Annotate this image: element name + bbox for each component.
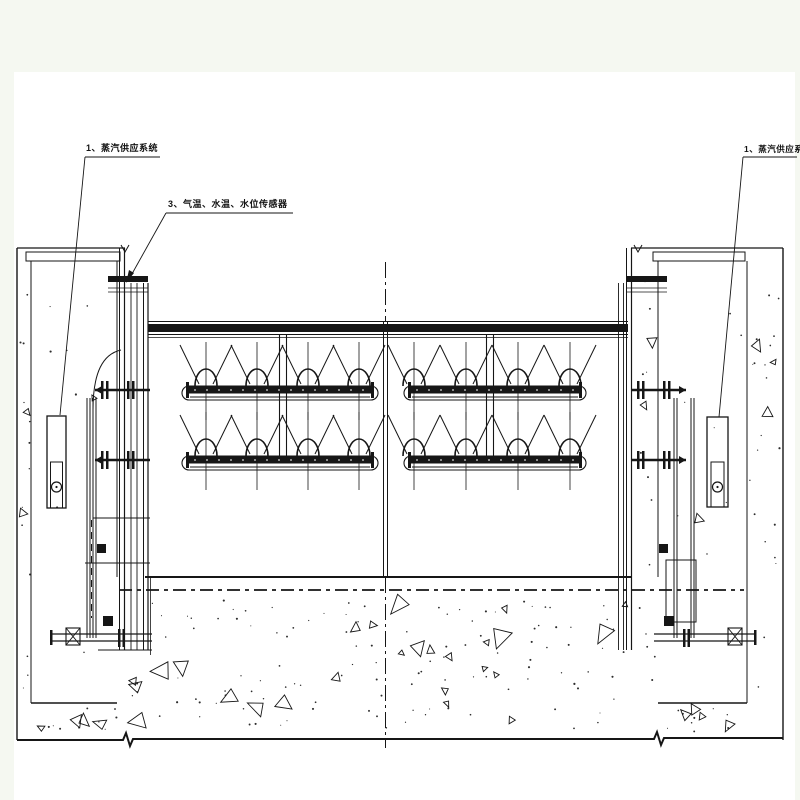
aggregate-dot bbox=[243, 708, 245, 710]
aggregate-dot bbox=[654, 656, 656, 658]
aggregate-dot bbox=[577, 687, 579, 689]
aggregate-dot bbox=[429, 660, 431, 662]
aggregate-dot bbox=[195, 698, 197, 700]
aggregate-dot bbox=[774, 557, 776, 559]
aggregate-dot bbox=[263, 698, 264, 699]
aggregate-dot bbox=[279, 665, 281, 667]
aggregate-dot bbox=[642, 373, 644, 375]
aggregate-dot bbox=[754, 362, 756, 364]
aggregate-dot bbox=[568, 644, 570, 646]
aggregate-dot bbox=[769, 345, 771, 347]
label-steam-supply-right: 1、蒸汽供应系统 bbox=[744, 144, 800, 155]
label-sensors: 3、气温、水温、水位传感器 bbox=[168, 199, 288, 210]
aggregate-dot bbox=[224, 690, 226, 692]
valve-handle bbox=[659, 544, 668, 553]
aggregate-dot bbox=[260, 680, 261, 681]
aggregate-dot bbox=[528, 666, 530, 668]
aggregate-dot bbox=[561, 672, 562, 673]
flange bbox=[642, 381, 645, 399]
aggregate-dot bbox=[445, 646, 447, 648]
aggregate-dot bbox=[646, 646, 648, 648]
aggregate-dot bbox=[764, 364, 765, 365]
aggregate-dot bbox=[480, 635, 482, 637]
aggregate-dot bbox=[508, 688, 510, 690]
aggregate-dot bbox=[756, 338, 758, 340]
aggregate-dot bbox=[280, 725, 281, 726]
aggregate-dot bbox=[286, 720, 287, 721]
aggregate-dot bbox=[639, 607, 641, 609]
aggregate-dot bbox=[105, 729, 106, 730]
aggregate-dot bbox=[59, 728, 61, 730]
aggregate-dot bbox=[115, 716, 117, 718]
aggregate-dot bbox=[294, 683, 295, 684]
aggregate-dot bbox=[464, 644, 466, 646]
aggregate-dot bbox=[255, 723, 257, 725]
aggregate-dot bbox=[438, 607, 440, 609]
aggregate-dot bbox=[199, 701, 201, 703]
aggregate-dot bbox=[418, 672, 420, 674]
flange bbox=[106, 381, 109, 399]
aggregate-dot bbox=[757, 449, 758, 450]
aggregate-dot bbox=[651, 499, 653, 501]
aggregate-dot bbox=[693, 730, 695, 732]
flange bbox=[132, 381, 135, 399]
aggregate-dot bbox=[486, 676, 488, 678]
aggregate-dot bbox=[459, 609, 460, 610]
aggregate-dot bbox=[23, 402, 24, 403]
aggregate-dot bbox=[623, 651, 625, 653]
aggregate-dot bbox=[485, 610, 487, 612]
aggregate-dot bbox=[587, 671, 589, 673]
aggregate-dot bbox=[75, 393, 77, 395]
aggregate-dot bbox=[249, 724, 251, 726]
aggregate-dot bbox=[527, 678, 528, 679]
aggregate-dot bbox=[364, 605, 366, 607]
aggregate-dot bbox=[323, 613, 324, 614]
aggregate-dot bbox=[472, 620, 474, 622]
flange bbox=[637, 451, 640, 469]
valve-handle bbox=[103, 616, 113, 626]
aggregate-dot bbox=[308, 620, 309, 621]
aggregate-dot bbox=[677, 710, 679, 712]
aggregate-dot bbox=[216, 703, 217, 704]
aggregate-dot bbox=[357, 621, 358, 622]
aggregate-dot bbox=[161, 615, 162, 616]
aggregate-dot bbox=[236, 618, 238, 620]
aggregate-dot bbox=[470, 714, 472, 716]
aggregate-dot bbox=[159, 715, 161, 717]
aggregate-dot bbox=[276, 632, 277, 633]
aggregate-dot bbox=[21, 524, 23, 526]
flange bbox=[127, 381, 130, 399]
label-steam-supply-left: 1、蒸汽供应系统 bbox=[86, 143, 158, 154]
aggregate-dot bbox=[766, 377, 768, 379]
slot-top-bracket-right bbox=[627, 276, 667, 282]
aggregate-dot bbox=[649, 308, 651, 310]
aggregate-dot bbox=[727, 714, 728, 715]
aggregate-dot bbox=[443, 656, 444, 657]
aggregate-dot bbox=[23, 342, 25, 344]
aggregate-dot bbox=[649, 564, 651, 566]
aggregate-dot bbox=[50, 351, 52, 353]
aggregate-dot bbox=[193, 628, 195, 630]
aggregate-dot bbox=[761, 435, 762, 436]
aggregate-dot bbox=[86, 707, 88, 709]
aggregate-dot bbox=[549, 607, 551, 609]
aggregate-dot bbox=[376, 662, 377, 663]
aggregate-dot bbox=[412, 710, 413, 711]
aggregate-dot bbox=[245, 610, 247, 612]
aggregate-dot bbox=[233, 609, 234, 610]
aggregate-dot bbox=[341, 675, 343, 677]
aggregate-dot bbox=[606, 619, 607, 620]
drawing-canvas: 1、蒸汽供应系统 3、气温、水温、水位传感器 1、蒸汽供应系统 bbox=[0, 0, 800, 800]
aggregate-dot bbox=[411, 683, 413, 685]
aggregate-dot bbox=[19, 341, 21, 343]
aggregate-dot bbox=[187, 616, 188, 617]
aggregate-dot bbox=[272, 607, 273, 608]
aggregate-dot bbox=[713, 708, 714, 709]
flange bbox=[642, 451, 645, 469]
aggregate-dot bbox=[191, 617, 192, 618]
engineering-drawing bbox=[0, 0, 800, 800]
aggregate-dot bbox=[29, 468, 30, 469]
flange bbox=[132, 451, 135, 469]
aggregate-dot bbox=[165, 636, 167, 638]
aggregate-dot bbox=[531, 641, 533, 643]
aggregate-dot bbox=[554, 708, 556, 710]
aggregate-dot bbox=[199, 716, 200, 717]
aggregate-dot bbox=[752, 364, 753, 365]
aggregate-dot bbox=[348, 602, 350, 604]
aggregate-dot bbox=[23, 687, 24, 688]
aggregate-dot bbox=[352, 664, 353, 665]
aggregate-dot bbox=[285, 686, 287, 688]
aggregate-dot bbox=[315, 701, 317, 703]
aggregate-dot bbox=[444, 679, 446, 681]
aggregate-dot bbox=[497, 652, 499, 654]
aggregate-dot bbox=[312, 708, 314, 710]
valve-handle bbox=[97, 544, 106, 553]
aggregate-dot bbox=[778, 298, 780, 300]
aggregate-dot bbox=[152, 603, 153, 604]
aggregate-dot bbox=[602, 648, 603, 649]
aggregate-dot bbox=[429, 708, 430, 709]
aggregate-dot bbox=[53, 725, 54, 726]
aggregate-dot bbox=[473, 676, 474, 677]
aggregate-dot bbox=[534, 628, 536, 630]
aggregate-dot bbox=[27, 655, 29, 657]
aggregate-dot bbox=[346, 614, 347, 615]
aggregate-dot bbox=[177, 677, 178, 678]
flange bbox=[668, 451, 671, 469]
aggregate-dot bbox=[684, 402, 685, 403]
aggregate-dot bbox=[86, 305, 88, 307]
aggregate-dot bbox=[651, 679, 653, 681]
aggregate-dot bbox=[768, 294, 770, 296]
aggregate-dot bbox=[425, 714, 426, 715]
aggregate-dot bbox=[545, 606, 547, 608]
aggregate-dot bbox=[286, 636, 288, 638]
aggregate-dot bbox=[217, 618, 219, 620]
aggregate-dot bbox=[381, 695, 383, 697]
aggregate-dot bbox=[706, 553, 707, 554]
aggregate-dot bbox=[371, 645, 373, 647]
aggregate-dot bbox=[667, 728, 668, 729]
aggregate-dot bbox=[48, 726, 50, 728]
aggregate-dot bbox=[345, 631, 347, 633]
aggregate-dot bbox=[376, 678, 378, 680]
aggregate-dot bbox=[356, 645, 357, 646]
aggregate-dot bbox=[613, 698, 614, 699]
aggregate-dot bbox=[28, 442, 30, 444]
aggregate-dot bbox=[691, 722, 693, 724]
aggregate-dot bbox=[749, 480, 750, 481]
aggregate-dot bbox=[251, 691, 253, 693]
aggregate-dot bbox=[50, 306, 51, 307]
aggregate-dot bbox=[495, 611, 496, 612]
aggregate-dot bbox=[573, 683, 575, 685]
aggregate-dot bbox=[773, 335, 775, 337]
flange bbox=[637, 381, 640, 399]
aggregate-dot bbox=[132, 695, 133, 696]
aggregate-dot bbox=[646, 372, 647, 373]
aggregate-dot bbox=[29, 421, 30, 422]
aggregate-dot bbox=[83, 652, 84, 653]
flange bbox=[127, 451, 130, 469]
aggregate-dot bbox=[647, 476, 649, 478]
aggregate-dot bbox=[729, 313, 731, 315]
aggregate-dot bbox=[546, 647, 548, 649]
aggregate-dot bbox=[597, 722, 598, 723]
aggregate-dot bbox=[775, 563, 776, 564]
aggregate-dot bbox=[300, 685, 301, 686]
aggregate-dot bbox=[714, 427, 715, 428]
aggregate-dot bbox=[778, 447, 780, 449]
pipe-bar bbox=[410, 387, 580, 394]
aggregate-dot bbox=[22, 507, 23, 508]
pipe-bar bbox=[410, 457, 580, 464]
aggregate-dot bbox=[555, 626, 557, 628]
aggregate-dot bbox=[406, 631, 408, 633]
aggregate-dot bbox=[740, 334, 742, 336]
aggregate-dot bbox=[529, 659, 531, 661]
aggregate-dot bbox=[27, 674, 28, 675]
aggregate-dot bbox=[603, 605, 604, 606]
aggregate-dot bbox=[405, 722, 406, 723]
flange bbox=[663, 451, 666, 469]
aggregate-dot bbox=[763, 637, 765, 639]
aggregate-dot bbox=[640, 452, 642, 454]
aggregate-dot bbox=[611, 676, 613, 678]
aggregate-dot bbox=[376, 715, 378, 717]
flange bbox=[106, 451, 109, 469]
aggregate-dot bbox=[570, 627, 571, 628]
aggregate-dot bbox=[368, 710, 370, 712]
aggregate-dot bbox=[774, 524, 776, 526]
aggregate-dot bbox=[600, 713, 601, 714]
aggregate-dot bbox=[114, 708, 116, 710]
aggregate-dot bbox=[420, 671, 422, 673]
aggregate-dot bbox=[26, 294, 28, 296]
aggregate-dot bbox=[240, 675, 241, 676]
flange bbox=[663, 381, 666, 399]
aggregate-dot bbox=[292, 627, 294, 629]
aggregate-dot bbox=[726, 502, 727, 503]
aggregate-dot bbox=[523, 601, 525, 603]
aggregate-dot bbox=[532, 606, 533, 607]
aggregate-dot bbox=[447, 613, 448, 614]
aggregate-dot bbox=[758, 686, 760, 688]
aggregate-dot bbox=[764, 541, 765, 542]
valve-handle bbox=[664, 616, 674, 626]
aggregate-dot bbox=[573, 728, 575, 730]
flange bbox=[668, 381, 671, 399]
aggregate-dot bbox=[538, 625, 540, 627]
aggregate-dot bbox=[645, 633, 646, 634]
aggregate-dot bbox=[176, 701, 178, 703]
aggregate-dot bbox=[250, 625, 251, 626]
aggregate-dot bbox=[223, 600, 225, 602]
aggregate-dot bbox=[693, 717, 695, 719]
aggregate-dot bbox=[754, 513, 756, 515]
